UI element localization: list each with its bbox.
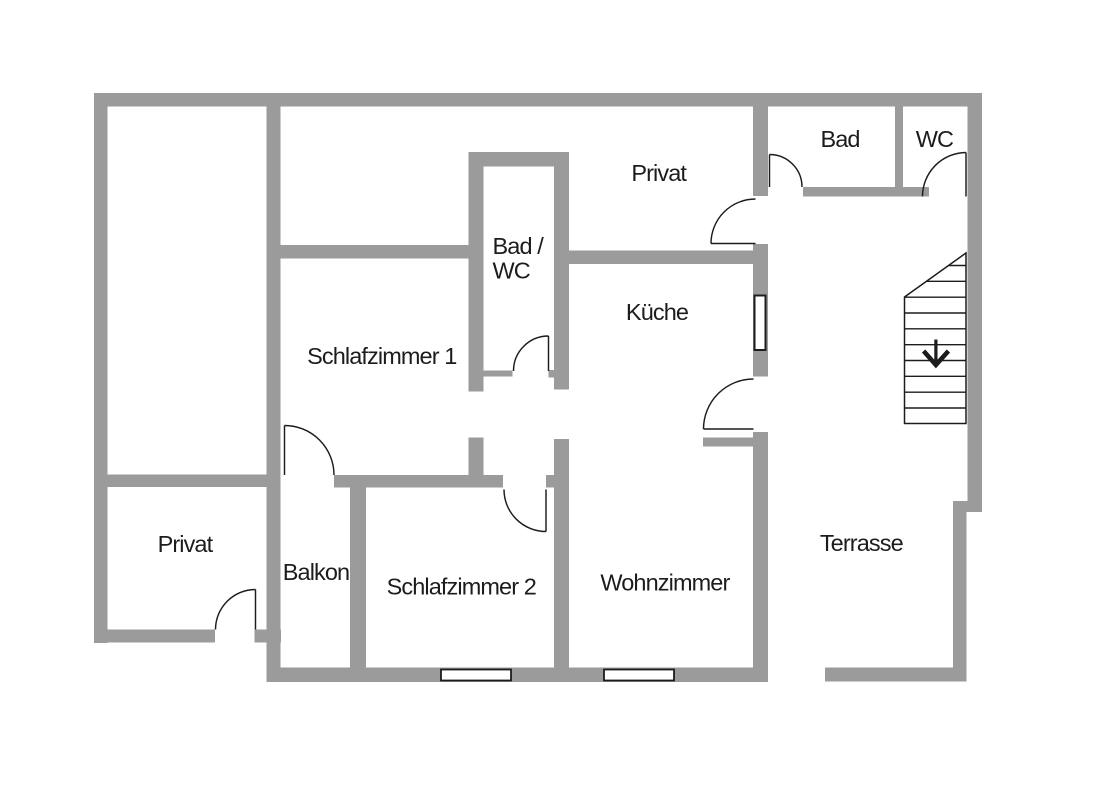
svg-text:Privat: Privat [631,160,687,186]
svg-text:Terrasse: Terrasse [820,530,904,556]
svg-text:Privat: Privat [158,531,214,557]
svg-text:Schlafzimmer 1: Schlafzimmer 1 [307,343,456,369]
svg-text:Schlafzimmer 2: Schlafzimmer 2 [387,574,536,600]
svg-text:WC: WC [916,126,954,152]
svg-text:Küche: Küche [626,299,689,325]
svg-text:Bad /: Bad / [493,233,545,259]
svg-text:Bad: Bad [820,126,859,152]
svg-text:Wohnzimmer: Wohnzimmer [600,570,730,596]
svg-text:Balkon: Balkon [283,559,349,585]
svg-text:WC: WC [493,258,531,284]
